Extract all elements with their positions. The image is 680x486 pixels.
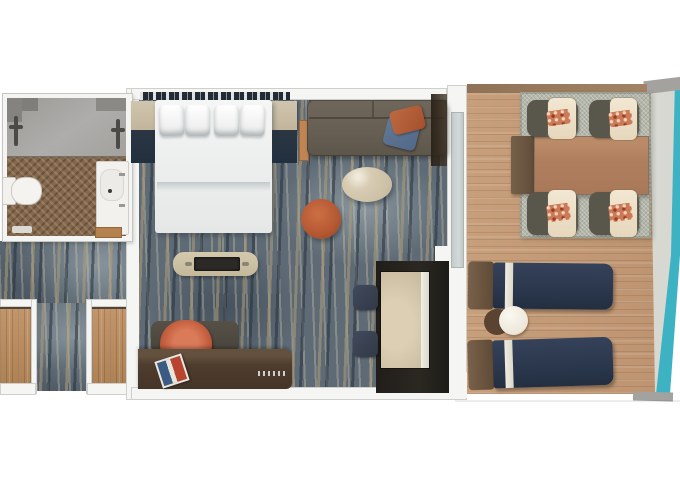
chair-pillow [608,109,632,127]
entry-wall [31,299,37,394]
bathroom-door-threshold [95,227,122,238]
entry-closet-floor-left [0,306,31,388]
nightstand-left [131,101,156,130]
tv-screen [194,257,240,271]
vanity-handle [119,204,125,207]
sofa-seam [309,117,445,119]
shower-wall-step [96,98,126,111]
balcony-dining-chair [589,100,639,138]
dining-bench-end [511,136,535,194]
stateroom-floorplan [0,0,680,486]
console-handle [242,262,249,266]
headboard-accent-wall [140,92,290,100]
balcony-dining-table [534,136,649,195]
desk-items [258,371,286,376]
entry-carpet [0,241,131,305]
balcony-dining-chair [527,100,578,137]
balcony-glass-door [451,112,464,268]
bed-pillow [158,105,184,137]
entry-wall [0,299,35,307]
console-handle [185,262,192,266]
bed-pillow [185,105,210,136]
entry-wall [87,299,131,307]
sun-lounger [466,335,616,394]
navy-stool [353,331,378,357]
shower-fixture-icon [116,119,120,149]
balcony-dining-chair [527,192,578,235]
toilet [11,177,42,205]
shower-fixture-icon [14,116,18,146]
nightstand-shadow [131,130,156,163]
balcony-shadow-line [455,400,680,402]
sofa-seam [372,101,374,117]
lounger-stripe [504,340,513,388]
nightstand-right [271,101,297,130]
entry-wall [86,299,92,394]
chair-pillow [546,203,571,223]
nightstand-shadow [271,130,297,163]
vanity-handle [119,173,125,176]
entry-corridor-carpet [36,303,87,391]
window-curtain [431,94,447,166]
navy-stool [353,285,378,310]
lounger-headrest [467,339,495,389]
pouf [301,199,341,239]
lounger-headrest [468,261,494,309]
duvet-fold [157,182,270,191]
bed-pillow [239,105,265,137]
bed-pillow [214,105,239,136]
entry-wall [0,383,36,395]
mirror-highlight [421,272,429,368]
sofa [307,100,447,156]
entry-wall [87,383,131,395]
bath-mat [12,226,32,233]
faucet-icon [108,189,112,193]
balcony-dining-chair [589,192,639,235]
side-table [499,306,528,335]
chair-pillow [607,203,632,223]
coffee-table [342,167,392,202]
lounger-stripe [505,263,513,309]
sun-lounger [467,260,616,314]
